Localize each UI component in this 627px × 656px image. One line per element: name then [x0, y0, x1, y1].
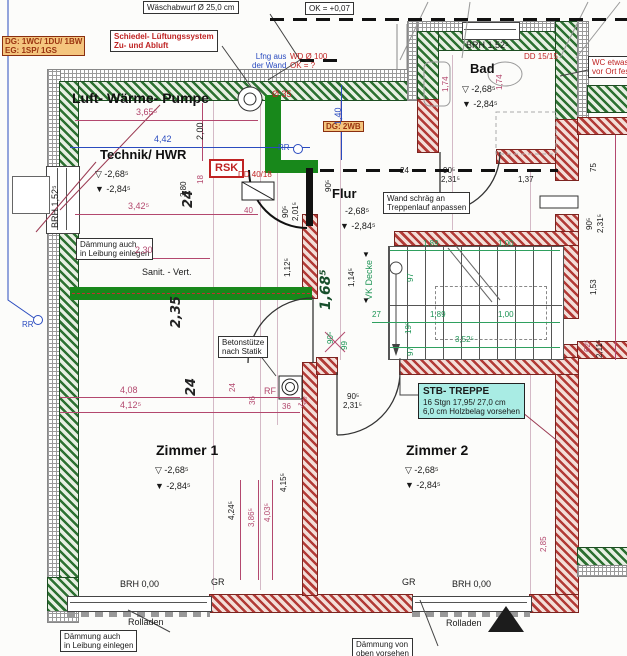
door-panel-right: [540, 196, 578, 208]
wall-neighbour-bottom-ins: [578, 566, 627, 576]
callout-wand-schraeg: Wand schräg an Treppenlauf anpassen: [383, 192, 470, 214]
label-brh0-left: BRH 0,00: [120, 579, 159, 589]
rr-symbol-left: [33, 315, 43, 325]
column-circle-inner: [286, 383, 295, 392]
mark-dia35: Ø 35: [272, 89, 292, 99]
dim: 1,12⁵: [283, 258, 292, 277]
callout-daemmung-2: Dämmung auch in Leibung einlegen: [60, 630, 137, 652]
dim: 1,37: [518, 175, 534, 184]
wall-flur-left-upper: [303, 215, 317, 298]
dim-line: [372, 322, 560, 323]
callout-wc-line2: vor Ort fes: [592, 67, 627, 76]
callout-betonstuetze: Betonstütze nach Statik: [218, 336, 268, 358]
callout-schiedel-line1: Schiedel- Lüftungssystem: [114, 32, 214, 41]
dim: 90⁵: [281, 206, 290, 218]
dim: 1,89: [423, 239, 439, 248]
dim-handwritten: 24: [182, 190, 197, 208]
callout-wand-line1: Wand schräg an: [387, 194, 466, 203]
wall-zimmer2-top-right: [400, 358, 578, 374]
wall-insulation-bad-left: [408, 22, 418, 100]
dim: 27: [372, 310, 381, 319]
room-flur: Flur: [332, 187, 357, 202]
window-left-shaft: [12, 176, 50, 214]
dim: 4,42: [154, 134, 172, 144]
label-sanit-vert: Sanit. - Vert.: [142, 267, 192, 277]
level-zimmer1-2: ▼ -2,84⁵: [155, 481, 191, 491]
dim: 4,03⁵: [263, 503, 272, 522]
dim: 1,00: [498, 310, 514, 319]
label-gr-right: GR: [402, 577, 416, 587]
room-zimmer2: Zimmer 2: [406, 442, 468, 458]
label-brh0-right: BRH 0,00: [452, 579, 491, 589]
callout-daemmung3-line1: Dämmung von: [356, 640, 409, 649]
callout-schiedel-line2: Zu- und Abluft: [114, 41, 214, 50]
wall-black-door-post: [306, 168, 313, 226]
wall-bottom-right: [530, 595, 578, 612]
wall-highlight-vertical: [265, 95, 281, 168]
room-bad: Bad: [470, 62, 495, 77]
callout-wd-line2: OK = ?: [290, 61, 327, 70]
dim: 90⁵: [324, 180, 333, 192]
callout-wd: WD Ø 100 OK = ?: [290, 52, 327, 70]
dim: 2,30: [135, 245, 153, 255]
room-lwp: Luft- Wärme- Pumpe: [72, 90, 209, 106]
dim: 1,74: [495, 74, 504, 90]
dim: 2,01⁵: [291, 202, 300, 221]
dim: 1,74: [441, 76, 450, 92]
dim: 1,40: [333, 107, 343, 125]
level-zimmer1-1: ▽ -2,68⁵: [155, 465, 189, 475]
wall-bottom-mid: [210, 595, 412, 612]
dim: 4,24⁵: [227, 501, 236, 520]
level-bad-2: ▼ -2,84⁵: [462, 99, 498, 109]
window-bad: [462, 22, 520, 40]
callout-treppe-line1: STB- TREPPE: [423, 386, 520, 398]
callout-lfng-line2: der Wand: [252, 61, 286, 70]
dim: 1,53: [589, 279, 598, 295]
dim: 3,65⁵: [136, 107, 157, 117]
dim: 4,12⁵: [120, 400, 141, 410]
mark-rf: RF: [264, 386, 276, 396]
callout-waeschabwurf: Wäschabwurf Ø 25,0 cm: [143, 1, 239, 14]
label-brh-bad: BRH 1,52⁵: [466, 40, 509, 50]
dim: 97: [406, 273, 415, 282]
floor-plan: Wäschabwurf Ø 25,0 cm OK = +0,07 Schiede…: [0, 0, 627, 656]
dim-line: [615, 135, 616, 360]
level-technik-2: ▼ -2,84⁵: [95, 184, 131, 194]
dim-line: [75, 214, 258, 215]
dim: 1,89: [430, 310, 446, 319]
callout-daemmung3-line2: oben vorsehen: [356, 649, 409, 656]
dim: 1,14⁵: [347, 268, 356, 287]
dim-handwritten: 1,68⁵: [318, 269, 334, 310]
callout-units-line2: EG: 1SP/ 1GS: [5, 46, 82, 55]
wall-right-1: [556, 120, 578, 180]
dim-handwritten: 2,35: [170, 296, 185, 328]
callout-beton-line1: Betonstütze: [222, 338, 264, 347]
callout-ok007: OK = +0,07: [305, 2, 354, 15]
dim-line: [240, 480, 241, 580]
dim: 2,00: [195, 122, 205, 140]
callout-wand-line2: Treppenlauf anpassen: [387, 203, 466, 212]
column-square: [279, 376, 302, 399]
label-vk-decke: VK Decke: [364, 260, 374, 300]
wall-bad-left-upper: [418, 32, 438, 100]
callout-beton-line2: nach Statik: [222, 347, 264, 356]
rr-symbol-mid: [293, 144, 303, 154]
wall-exterior-left: [60, 82, 78, 612]
north-arrow: [488, 606, 524, 632]
mark-rr-mid: RR: [278, 143, 290, 152]
wall-insulation-left: [48, 70, 60, 612]
dim: 2,85: [539, 536, 548, 552]
column-circle-outer: [282, 379, 298, 395]
wall-neighbour-bottom-green: [578, 548, 627, 566]
dim: 24: [228, 383, 237, 392]
dim: 1,00: [498, 239, 514, 248]
callout-wc: WC etwas vor Ort fes: [588, 56, 627, 78]
level-flur-2: ▼ -2,84⁵: [340, 221, 376, 231]
wall-bad-left-lower: [418, 100, 438, 152]
wall-insulation-right: [578, 22, 588, 120]
level-zimmer2-2: ▼ -2,84⁵: [405, 480, 441, 490]
mark-dd1515: DD 15/15: [524, 52, 558, 61]
wall-neighbour-green: [588, 86, 627, 112]
label-gr-left: GR: [211, 577, 225, 587]
level-bad-1: ▽ -2,68⁵: [462, 84, 496, 94]
level-technik-1: ▽ -2,68⁵: [95, 169, 129, 179]
dim: 19⁵: [404, 322, 413, 334]
wall-neighbour-top: [578, 118, 627, 134]
level-zimmer2-1: ▽ -2,68⁵: [405, 465, 439, 475]
dim: 36: [248, 396, 257, 405]
wall-bad-bottom: [497, 150, 556, 163]
dim-handwritten: 24: [185, 378, 200, 396]
callout-daemmung2-line2: in Leibung einlegen: [64, 641, 133, 650]
window-left-frame: [66, 168, 67, 230]
level-flur-1: -2,68⁵: [345, 206, 369, 216]
dim: 40: [244, 206, 253, 215]
dim: 90⁵: [443, 166, 455, 175]
wall-highlight-sanit-centerline: [72, 293, 310, 294]
mark-rr-left: RR: [22, 320, 34, 329]
vk-triangle: ▼: [362, 296, 370, 305]
mark-dd4018: DD 40/18: [238, 170, 272, 179]
dim-line: [60, 412, 300, 413]
dim: 3,52⁵: [455, 335, 474, 344]
callout-wc-line1: WC etwas: [592, 58, 627, 67]
vk-triangle: ▼: [362, 250, 370, 259]
dim: 24: [400, 166, 409, 175]
section-line-mid: [320, 169, 558, 172]
window-zimmer1: [67, 596, 212, 612]
dim: 2,31⁵: [441, 175, 460, 184]
callout-daemmung2-line1: Dämmung auch: [64, 632, 133, 641]
dim: 2,31⁵: [343, 401, 362, 410]
wall-right-3: [556, 345, 578, 612]
window-zimmer1-frame: [70, 602, 207, 603]
dim: 18: [196, 175, 205, 184]
callout-stb-treppe: STB- TREPPE 16 Stgn 17,95/ 27,0 cm 6,0 c…: [418, 383, 525, 419]
dim: 2,31⁵: [596, 214, 605, 233]
callout-lfng: Lfng aus der Wand: [252, 52, 286, 70]
shower: [496, 112, 556, 154]
dim: 36: [282, 402, 291, 411]
callout-units-line1: DG: 1WC/ 1DU/ 1BW: [5, 37, 82, 46]
label-brh-left: BRH 1,52⁵: [50, 185, 60, 228]
wall-insulation-top: [48, 70, 418, 82]
dim: 90⁵: [326, 332, 335, 344]
dim: 4,15⁵: [279, 473, 288, 492]
dim-line: [258, 480, 259, 580]
room-zimmer1: Zimmer 1: [156, 442, 218, 458]
callout-daemmung-3: Dämmung von oben vorsehen: [352, 638, 413, 656]
dim-line: [60, 397, 300, 398]
dim: 90⁵: [347, 392, 359, 401]
dim: 97: [406, 347, 415, 356]
dim: 4,08: [120, 385, 138, 395]
shaft-diagonal: [242, 182, 274, 200]
callout-treppe-line2: 16 Stgn 17,95/ 27,0 cm: [423, 398, 520, 407]
callout-wd-line1: WD Ø 100: [290, 52, 327, 61]
dim: 90⁵: [585, 218, 594, 230]
wall-exterior-right-upper: [556, 22, 578, 120]
dim-line: [272, 480, 273, 580]
dim: 62⁵: [583, 340, 592, 352]
label-rolladen-right: Rolladen: [446, 618, 482, 628]
window-zimmer2-frame: [415, 602, 527, 603]
dim: 3,42⁵: [128, 201, 149, 211]
section-line-top: [270, 18, 627, 21]
window-bad-frame: [464, 29, 516, 30]
callout-treppe-line3: 6,0 cm Holzbelag vorsehen: [423, 407, 520, 416]
room-technik: Technik/ HWR: [100, 148, 186, 163]
dim: 3,86⁵: [247, 508, 256, 527]
dim-line: [75, 120, 258, 121]
shaft-dd4018: [242, 182, 274, 200]
stair-void-dashed: [435, 286, 547, 340]
dim: 75: [589, 163, 598, 172]
dim: 2,11⁵: [595, 340, 604, 358]
callout-schiedel: Schiedel- Lüftungssystem Zu- und Abluft: [110, 30, 218, 52]
callout-lfng-line1: Lfng aus: [252, 52, 286, 61]
dim-line: [390, 347, 560, 348]
callout-units: DG: 1WC/ 1DU/ 1BW EG: 1SP/ 1GS: [2, 36, 85, 56]
wall-zimmer2-top-left: [317, 358, 337, 374]
dim-line: [390, 250, 560, 251]
dim: 99: [340, 341, 349, 350]
label-rolladen-left: Rolladen: [128, 617, 164, 627]
